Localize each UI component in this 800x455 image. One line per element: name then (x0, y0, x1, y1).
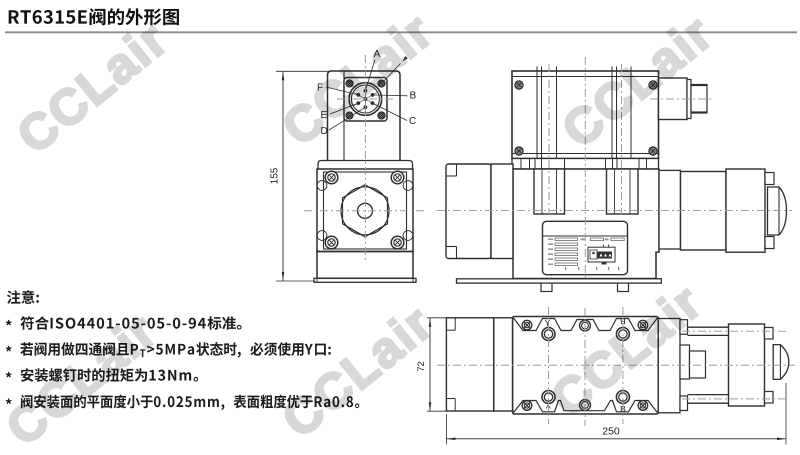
svg-text:CCLair: CCLair (7, 10, 179, 164)
svg-text:Y: Y (545, 318, 551, 328)
svg-text:155: 155 (270, 167, 281, 184)
svg-text:C: C (409, 116, 416, 127)
svg-text:B: B (410, 91, 417, 102)
svg-text:250: 250 (602, 426, 620, 438)
svg-text:72: 72 (416, 361, 427, 372)
